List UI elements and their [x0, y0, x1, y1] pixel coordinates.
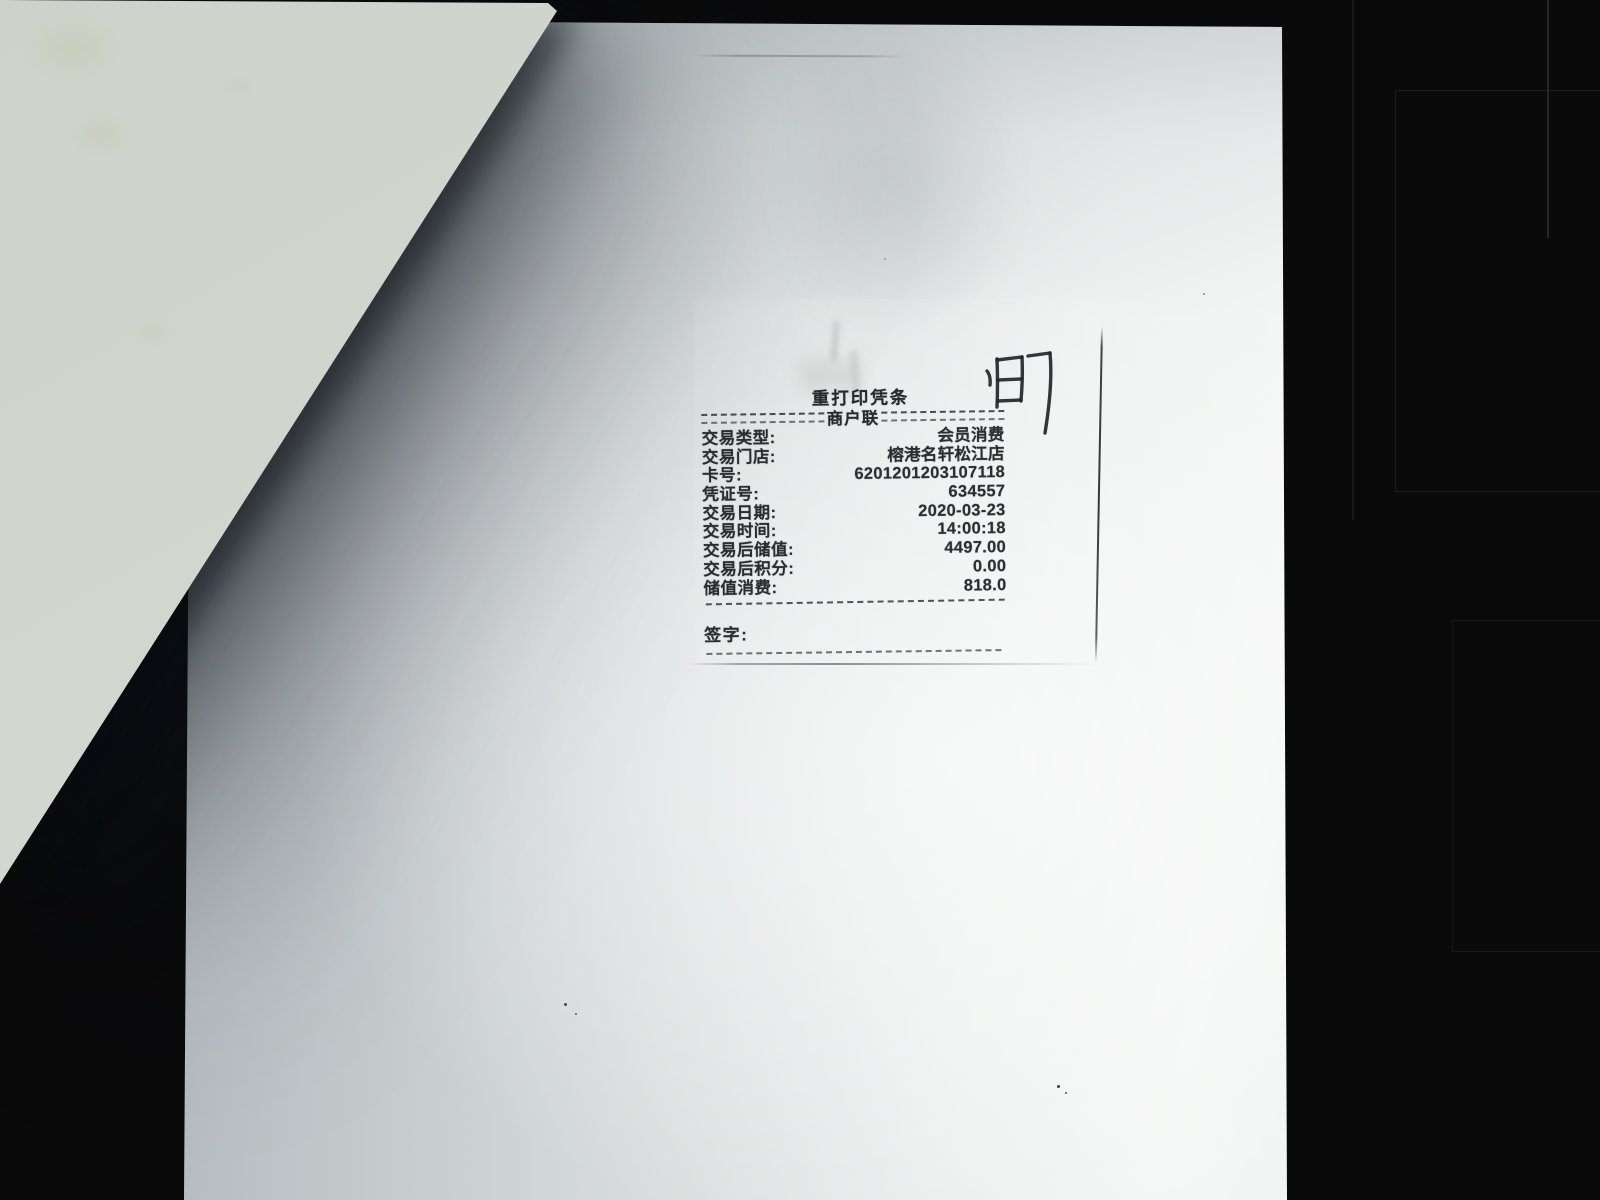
receipt-title: 重打印凭条 — [709, 387, 1012, 410]
pen-stroke — [1028, 353, 1050, 356]
row-value: 818.0 — [964, 576, 1007, 595]
row-label: 储值消费: — [703, 579, 777, 599]
paper-sheet: 重打印凭条 商户联 交易类型: 会员消费 交易门店: 榕港名轩松江店 卡号: 6… — [0, 0, 1600, 1200]
background-shadow-rect — [1395, 90, 1600, 492]
receipt-rows: 交易类型: 会员消费 交易门店: 榕港名轩松江店 卡号: 62012012031… — [702, 426, 1007, 598]
paper-speck — [1057, 1085, 1060, 1088]
receipt-copy-row: 商户联 — [701, 407, 1004, 427]
signature-label: 签字: — [704, 622, 1007, 645]
receipt-row: 储值消费: 818.0 — [703, 576, 1006, 599]
pen-stroke — [987, 371, 990, 385]
row-label: 凭证号: — [702, 485, 759, 504]
row-label: 交易门店: — [702, 448, 776, 468]
row-label: 交易日期: — [702, 504, 776, 524]
receipt-row: 交易后储值: 4497.00 — [703, 538, 1006, 561]
merchant-copy-label: 商户联 — [824, 405, 881, 430]
pen-stroke — [998, 400, 1021, 401]
row-value: 2020-03-23 — [918, 501, 1006, 521]
receipt-print: 重打印凭条 商户联 交易类型: 会员消费 交易门店: 榕港名轩松江店 卡号: 6… — [701, 387, 1007, 655]
paper-speck — [564, 1003, 567, 1006]
dashed-rule — [701, 412, 824, 424]
pen-stroke — [997, 357, 1022, 360]
photo-backdrop: 重打印凭条 商户联 交易类型: 会员消费 交易门店: 榕港名轩松江店 卡号: 6… — [0, 0, 1600, 1200]
paper-speck — [575, 1013, 577, 1015]
row-label: 交易后储值: — [703, 541, 794, 561]
row-value: 634557 — [948, 482, 1005, 501]
row-label: 交易后积分: — [703, 560, 794, 580]
pen-stroke — [1045, 353, 1051, 433]
paper-speck — [1065, 1092, 1067, 1094]
row-label: 交易时间: — [703, 522, 777, 542]
row-value: 0.00 — [973, 557, 1007, 576]
row-value: 14:00:18 — [937, 519, 1006, 539]
row-value: 榕港名轩松江店 — [887, 445, 1005, 465]
slip-bottom-edge — [688, 663, 1100, 665]
paper-speck — [1203, 293, 1205, 295]
pen-stroke — [998, 379, 1021, 380]
row-value: 4497.00 — [944, 538, 1006, 557]
background-edge-line — [1352, 0, 1354, 520]
background-shadow-rect — [1452, 620, 1600, 952]
row-label: 交易类型: — [702, 429, 776, 449]
background-seam-line — [1547, 0, 1549, 238]
handwritten-mark — [973, 344, 1057, 442]
dashed-separator — [706, 599, 1005, 606]
smudge-mark — [800, 360, 860, 390]
row-value: 6201201203107118 — [854, 463, 1005, 484]
row-label: 卡号: — [702, 467, 742, 486]
paper-speck — [884, 258, 886, 260]
